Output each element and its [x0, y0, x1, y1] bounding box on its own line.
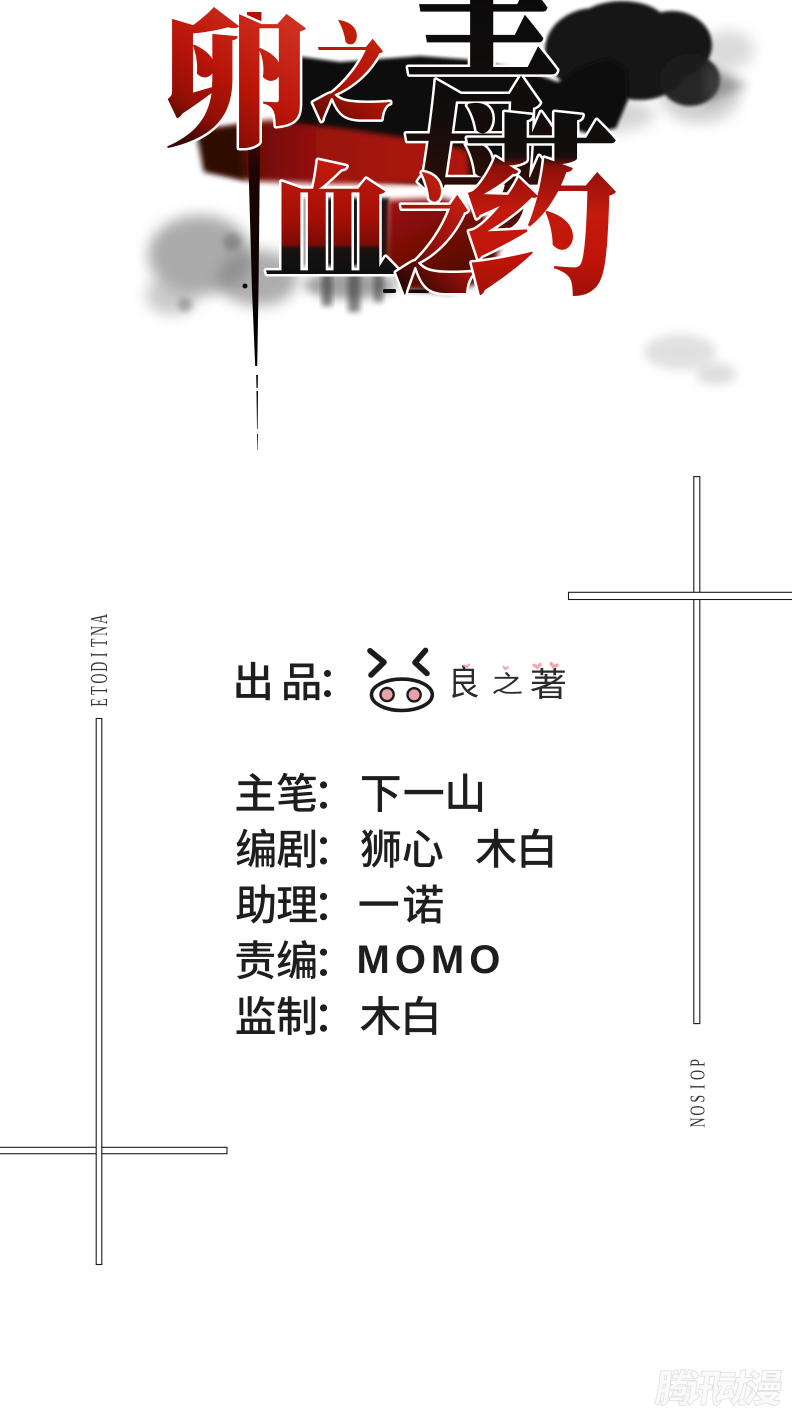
- svg-text:S: S: [686, 1095, 710, 1103]
- svg-text:A: A: [86, 614, 113, 625]
- svg-text:I: I: [86, 652, 113, 657]
- svg-text:N: N: [686, 1117, 710, 1127]
- svg-text:P: P: [686, 1059, 710, 1067]
- svg-text:N: N: [86, 626, 113, 636]
- svg-text:T: T: [86, 639, 113, 648]
- svg-text:I: I: [686, 1084, 710, 1089]
- svg-text:T: T: [86, 686, 113, 695]
- svg-text:O: O: [86, 674, 113, 684]
- svg-text:D: D: [86, 662, 113, 672]
- svg-text:O: O: [686, 1070, 710, 1080]
- svg-text:MOMO: MOMO: [357, 938, 506, 982]
- svg-text:E: E: [86, 698, 113, 707]
- svg-text:O: O: [686, 1105, 710, 1115]
